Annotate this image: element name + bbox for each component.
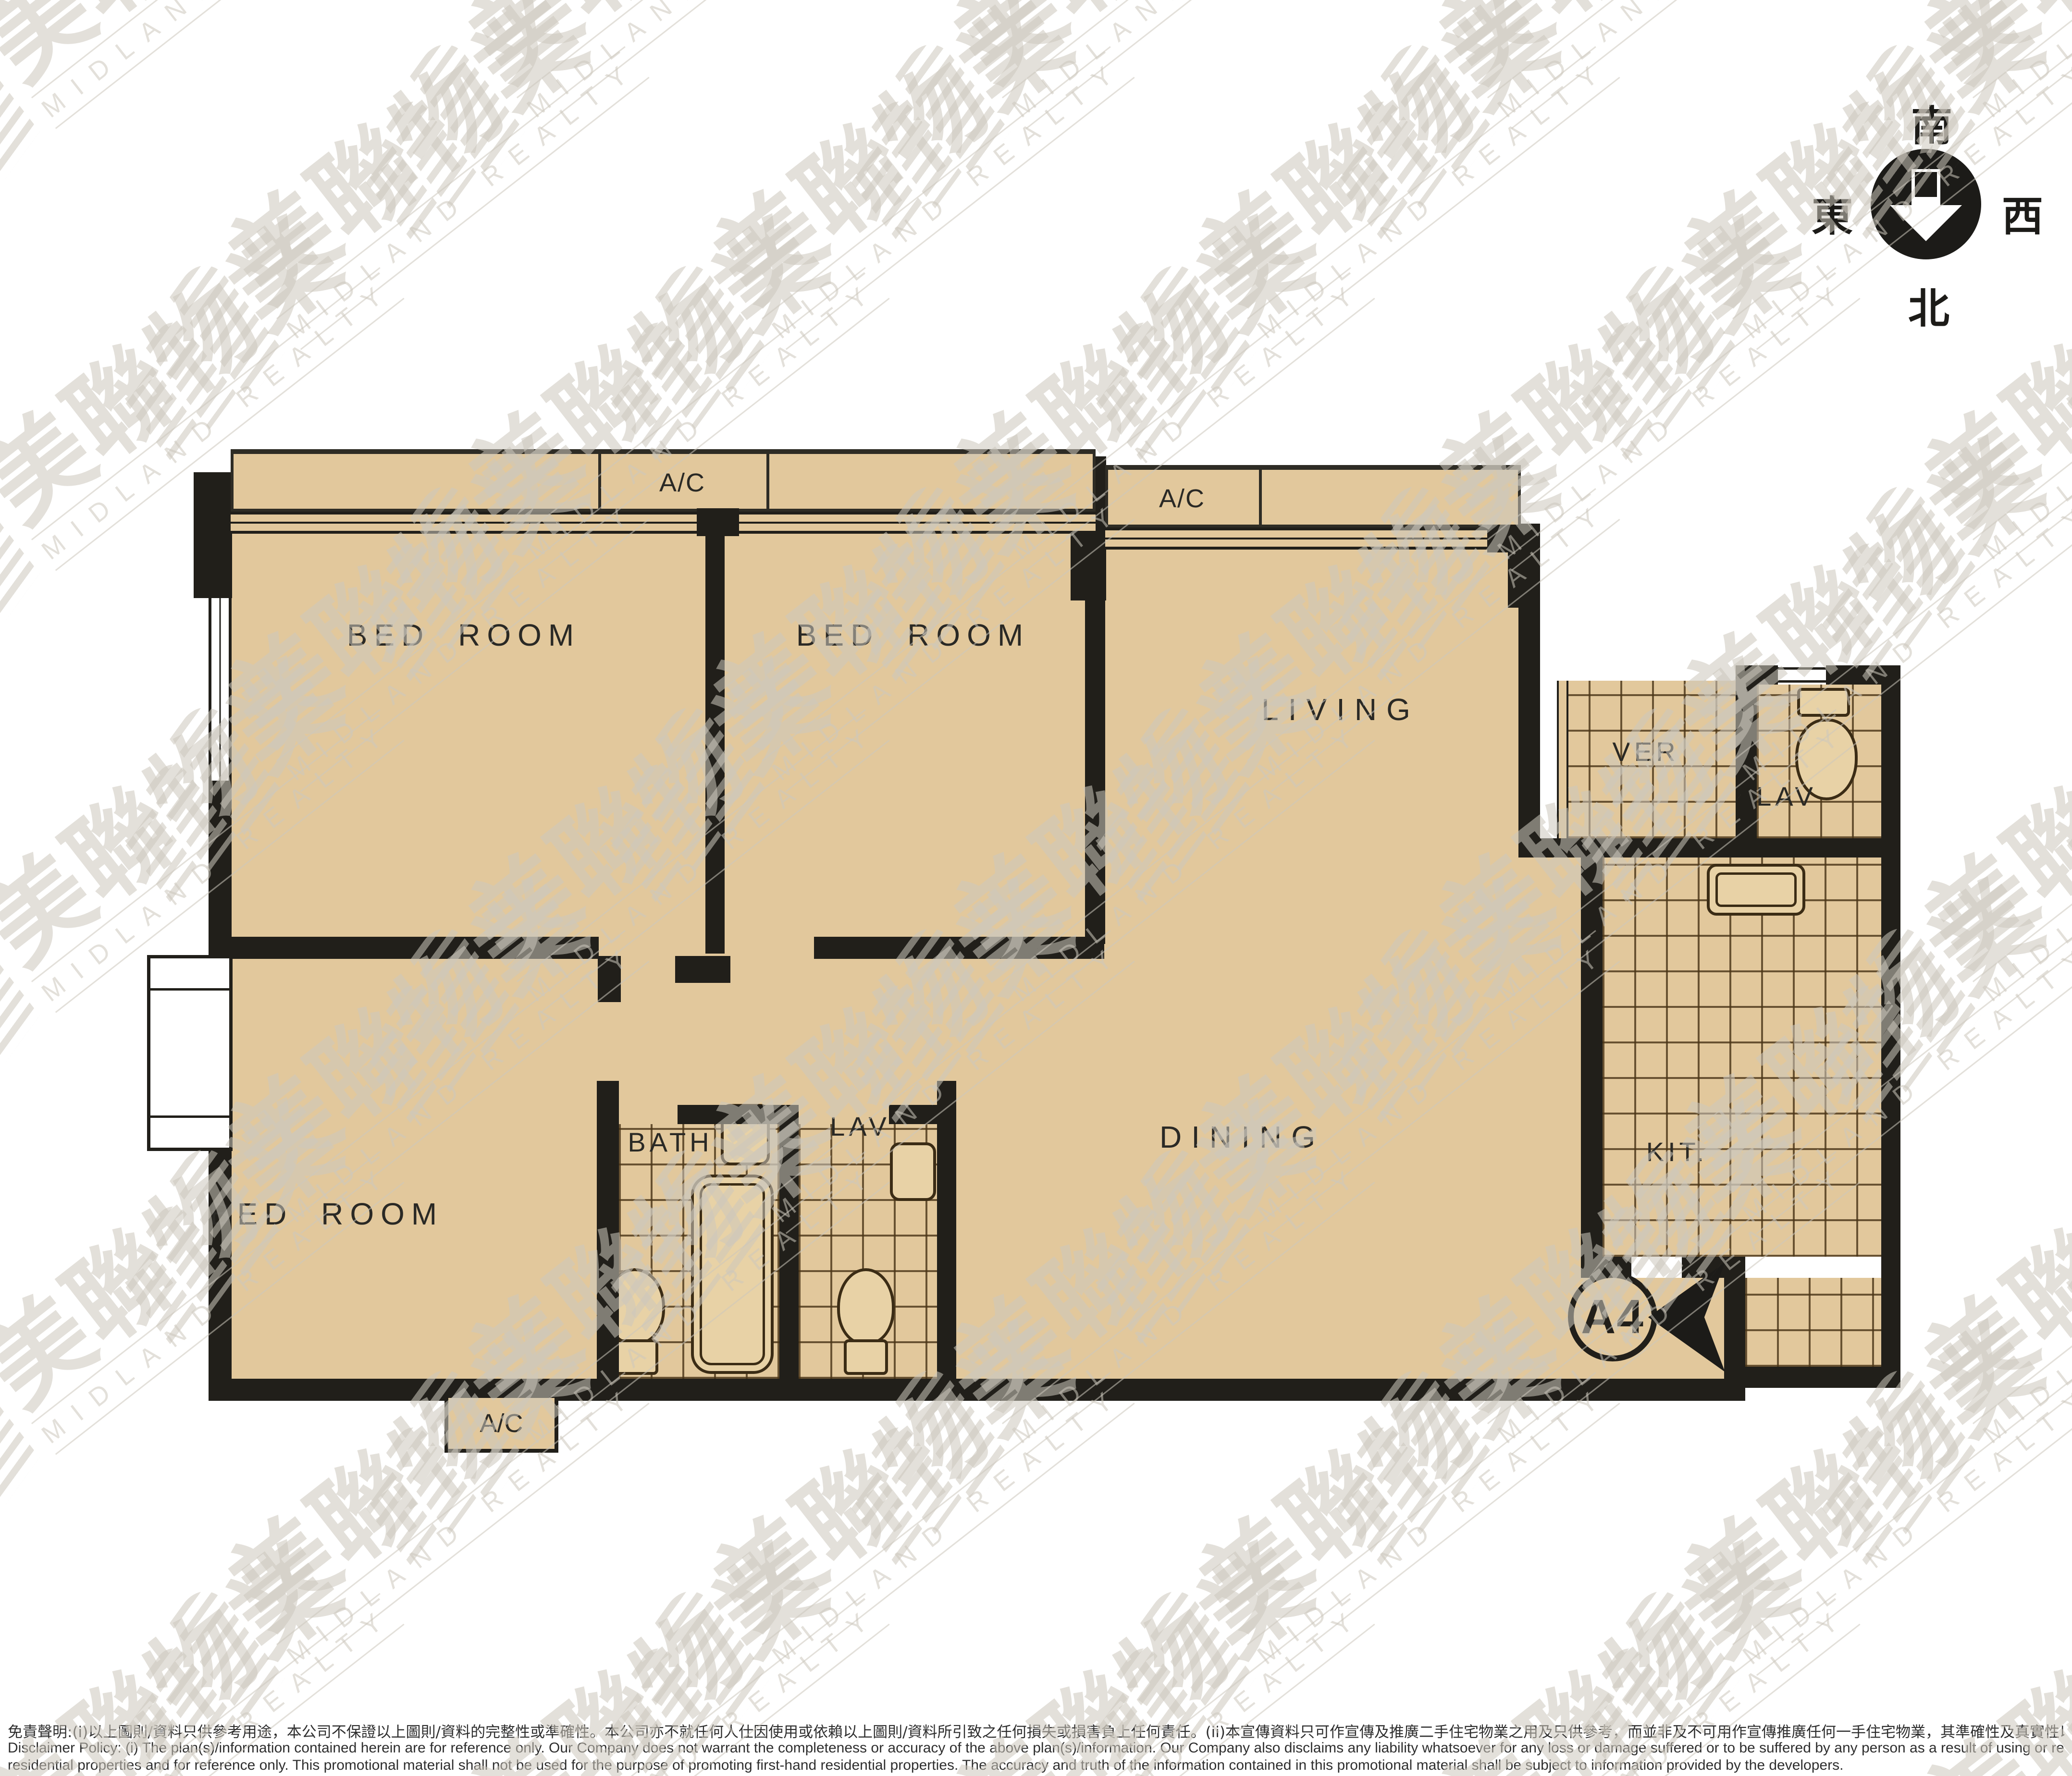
watermark-cjk-text: 美聯物業 bbox=[701, 0, 1107, 315]
left-wall-window bbox=[209, 598, 232, 781]
midland-watermark-text: 美聯物業 MIDLAND REALTY bbox=[216, 0, 650, 350]
unit-badge-text: A4 bbox=[1581, 1289, 1644, 1345]
verandah-rail-left bbox=[1557, 681, 1568, 838]
wall-hall-jamb-middle bbox=[675, 956, 730, 983]
midland-logo-icon bbox=[326, 35, 530, 234]
midland-watermark-text: 美聯物業 MIDLAND REALTY bbox=[1427, 0, 1861, 129]
wall-dining-right bbox=[1581, 857, 1603, 1278]
kitchen-tiled-floor-lower bbox=[1745, 1278, 1881, 1367]
living-window-band bbox=[1105, 527, 1521, 550]
watermark-cjk-text: 美聯物業 bbox=[1912, 1073, 2072, 1419]
midland-watermark: 美聯物業 MIDLAND REALTY bbox=[806, 0, 1346, 234]
wall-bedrooms-bottom-left bbox=[232, 937, 599, 959]
watermark-latin-text: MIDLAND REALTY bbox=[762, 46, 1135, 350]
midland-logo-icon bbox=[0, 477, 45, 676]
midland-watermark: 美聯物業 MIDLAND REALTY bbox=[1292, 0, 1832, 234]
watermark-cjk-text: 美聯物業 bbox=[1912, 0, 2072, 94]
midland-logo-icon bbox=[1297, 35, 1501, 234]
room-label-bedroom-top-left: BED ROOM bbox=[296, 617, 632, 653]
midland-logo-icon bbox=[0, 919, 45, 1118]
midland-logo-icon bbox=[2027, 1140, 2072, 1339]
lavatory-toilet-bowl bbox=[837, 1268, 895, 1345]
wall-left-lower bbox=[209, 1151, 232, 1401]
midland-watermark: 美聯物業 MIDLAND REALTY bbox=[2022, 875, 2072, 1339]
watermark-latin-text: MIDLAND REALTY bbox=[1487, 267, 1861, 571]
midland-logo-icon bbox=[1782, 477, 1986, 676]
wall-living-right bbox=[1518, 567, 1540, 857]
ac-label-text: A/C bbox=[480, 1409, 523, 1438]
watermark-latin-text: MIDLAND REALTY bbox=[1973, 709, 2072, 1013]
midland-logo-icon bbox=[2027, 256, 2072, 455]
midland-watermark-text: 美聯物業 MIDLAND REALTY bbox=[456, 0, 890, 129]
ac-label-text: A/C bbox=[1159, 484, 1205, 514]
midland-watermark: 美聯物業 MIDLAND REALTY bbox=[81, 0, 621, 455]
watermark-latin-text: MIDLAND REALTY bbox=[517, 0, 890, 129]
midland-watermark: 美聯物業 MIDLAND REALTY bbox=[2022, 433, 2072, 897]
watermark-latin-text: MIDLAND REALTY bbox=[1247, 46, 1620, 350]
midland-watermark: 美聯物業 MIDLAND REALTY bbox=[321, 0, 861, 234]
midland-watermark-text: 美聯物業 MIDLAND REALTY bbox=[941, 0, 1375, 129]
disclaimer-line-en1: Disclaimer Policy: (i) The plan(s)/infor… bbox=[8, 1740, 2064, 1756]
wall-verandah-bottom bbox=[1557, 838, 1900, 857]
watermark-cjk-text: 美聯物業 bbox=[1427, 0, 1833, 94]
room-label-bedroom-top-middle: BED ROOM bbox=[745, 617, 1081, 653]
ac-unit-label-bedrooms: A/C bbox=[598, 456, 766, 509]
bathtub-inner-line bbox=[700, 1183, 765, 1365]
midland-watermark-text: 美聯物業 MIDLAND REALTY bbox=[1912, 1073, 2072, 1455]
wall-bedroom-divider bbox=[705, 531, 725, 954]
ac-unit-box-bottom: A/C bbox=[444, 1394, 558, 1453]
midland-logo-icon bbox=[0, 35, 45, 234]
compass-south-label: 南 bbox=[1903, 92, 1961, 152]
watermark-latin-text: MIDLAND REALTY bbox=[762, 1372, 1135, 1676]
lavatory-toilet-tank bbox=[844, 1339, 888, 1375]
window-pier-2 bbox=[1487, 525, 1521, 552]
wall-left-middle bbox=[209, 781, 232, 956]
watermark-latin-text: MIDLAND REALTY bbox=[1973, 0, 2072, 129]
disclaimer-line-zh: 免責聲明:(i)以上圖則/資料只供參考用途，本公司不保證以上圖則/資料的完整性或… bbox=[8, 1720, 2064, 1741]
wall-corner-top-left bbox=[194, 472, 232, 598]
bedrooms-window-band bbox=[231, 512, 1096, 534]
wall-right-outer bbox=[1881, 665, 1900, 1388]
ac-label-text: A/C bbox=[659, 468, 705, 498]
bay-window bbox=[147, 955, 233, 1151]
midland-watermark-text: 美聯物業 MIDLAND REALTY bbox=[701, 0, 1135, 350]
window-pier-1 bbox=[697, 508, 739, 536]
kitchen-tiled-floor bbox=[1603, 857, 1881, 1257]
midland-watermark-text: 美聯物業 MIDLAND REALTY bbox=[1912, 631, 2072, 1013]
unit-badge: A4 bbox=[1568, 1272, 1657, 1361]
midland-watermark: 美聯物業 MIDLAND REALTY bbox=[0, 0, 376, 234]
midland-watermark: 美聯物業 MIDLAND REALTY bbox=[2022, 1317, 2072, 1776]
room-label-living: LIVING bbox=[1172, 692, 1509, 727]
disclaimer-line-en2: residential properties and for reference… bbox=[8, 1757, 2064, 1774]
wall-bath-lavatory-divider bbox=[779, 1105, 799, 1379]
room-label-lavatory: LAV bbox=[800, 1111, 920, 1142]
wall-bottom bbox=[209, 1379, 1745, 1401]
watermark-latin-text: MIDLAND REALTY bbox=[1973, 1151, 2072, 1455]
watermark-cjk-text: 美聯物業 bbox=[1186, 0, 1592, 315]
room-label-bath: BATH bbox=[601, 1127, 740, 1158]
wall-upper-lavatory-top-a bbox=[1736, 665, 1778, 685]
watermark-cjk-text: 美聯物業 bbox=[216, 0, 622, 315]
watermark-latin-text: MIDLAND REALTY bbox=[1732, 1372, 2072, 1676]
room-label-dining: DINING bbox=[1074, 1119, 1410, 1155]
ledge-divider-2 bbox=[766, 452, 769, 512]
kitchen-sink bbox=[1707, 864, 1805, 916]
midland-logo-icon bbox=[86, 256, 290, 455]
midland-logo-icon bbox=[1057, 256, 1260, 455]
watermark-cjk-text: 美聯物業 bbox=[456, 0, 862, 94]
ac-unit-label-living: A/C bbox=[1105, 472, 1259, 525]
midland-watermark-text: 美聯物業 MIDLAND REALTY bbox=[1186, 0, 1620, 350]
compass-west-label: 西 bbox=[1994, 183, 2051, 243]
watermark-latin-text: MIDLAND REALTY bbox=[1002, 0, 1375, 129]
bathtub bbox=[691, 1175, 774, 1374]
wall-verandah-lavatory-divider bbox=[1736, 665, 1757, 857]
watermark-cjk-text: 美聯物業 bbox=[1912, 631, 2072, 977]
ledge-divider-3 bbox=[1259, 468, 1262, 527]
midland-logo-icon bbox=[1542, 256, 1746, 455]
kitchen-sink-inner-line bbox=[1715, 872, 1797, 907]
room-label-lavatory-upper: LAV bbox=[1729, 781, 1844, 812]
midland-watermark: 美聯物業 MIDLAND REALTY bbox=[1051, 0, 1591, 455]
midland-logo-icon bbox=[571, 256, 775, 455]
wall-hall-jamb-left bbox=[598, 956, 621, 1002]
midland-logo-icon bbox=[2027, 698, 2072, 897]
midland-logo-icon bbox=[1782, 1361, 1986, 1560]
watermark-cjk-text: 美聯物業 bbox=[941, 0, 1347, 94]
watermark-latin-text: MIDLAND REALTY bbox=[276, 46, 650, 350]
floor-plan-page: { "page": {"width": 4312, "height": 3697… bbox=[0, 0, 2072, 1776]
wall-bedroom2-living bbox=[1085, 531, 1105, 944]
midland-logo-icon bbox=[0, 1361, 45, 1560]
wall-entrance-jamb bbox=[1724, 1258, 1745, 1401]
upper-lavatory-toilet-tank bbox=[1797, 688, 1850, 717]
room-label-verandah: VER bbox=[1571, 736, 1720, 767]
midland-logo-icon bbox=[812, 35, 1015, 234]
wall-bath-left bbox=[597, 1081, 619, 1379]
watermark-latin-text: MIDLAND REALTY bbox=[1487, 0, 1861, 129]
compass-arrow-notch bbox=[1915, 172, 1937, 197]
compass-east-label: 東 bbox=[1803, 183, 1861, 243]
compass-north-label: 北 bbox=[1900, 275, 1958, 335]
room-label-bedroom-bottom-left: BED ROOM bbox=[159, 1196, 495, 1232]
watermark-latin-text: MIDLAND REALTY bbox=[31, 0, 405, 129]
watermark-cjk-text: 美聯物業 bbox=[1672, 0, 2072, 315]
wall-bedrooms-bottom-right bbox=[814, 937, 1104, 959]
watermark-latin-text: MIDLAND REALTY bbox=[1247, 1372, 1620, 1676]
midland-watermark-text: 美聯物業 MIDLAND REALTY bbox=[1672, 0, 2072, 350]
watermark-cjk-text: 美聯物業 bbox=[0, 0, 377, 94]
wall-kitchen-bottom-lower bbox=[1745, 1367, 1900, 1388]
midland-watermark: 美聯物業 MIDLAND REALTY bbox=[566, 0, 1106, 455]
wall-lavatory-right bbox=[937, 1081, 956, 1379]
lavatory-sink bbox=[890, 1142, 936, 1201]
room-label-kitchen: KIT. bbox=[1603, 1136, 1751, 1167]
watermark-latin-text: MIDLAND REALTY bbox=[1973, 267, 2072, 571]
upper-lavatory-window bbox=[1778, 667, 1826, 683]
midland-watermark-text: 美聯物業 MIDLAND REALTY bbox=[0, 0, 405, 129]
